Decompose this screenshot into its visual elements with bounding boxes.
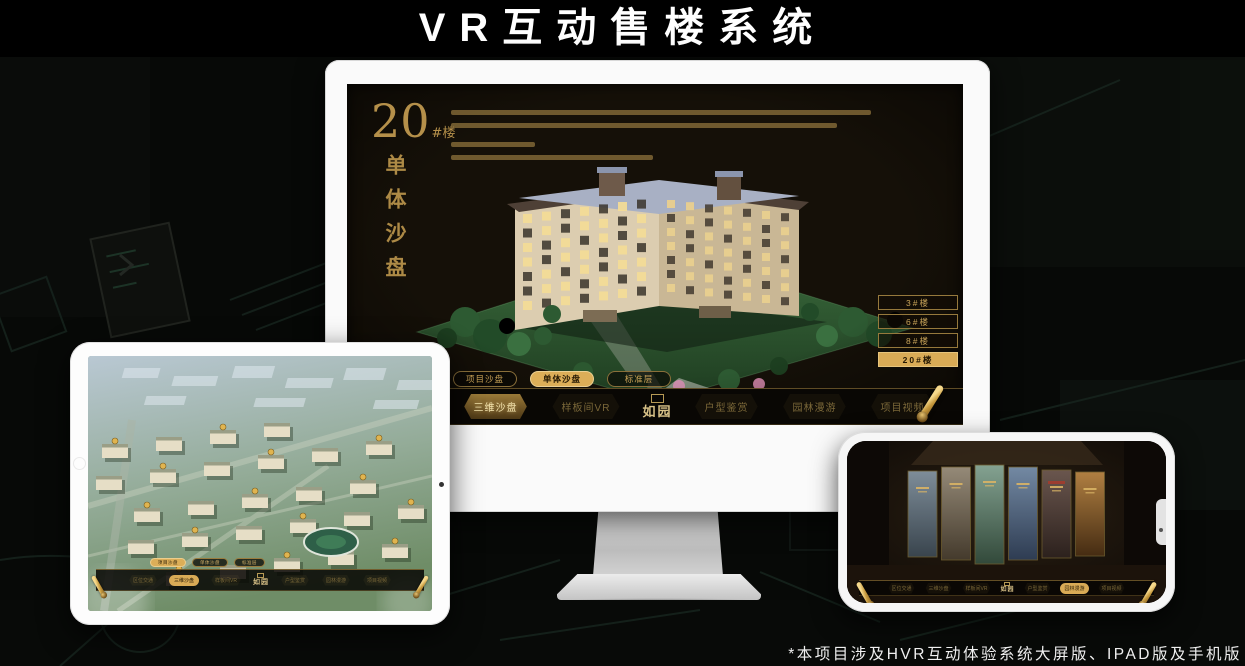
brand-logo[interactable]: 如园 bbox=[253, 573, 269, 587]
subtab-single-sandbox[interactable]: 单体沙盘 bbox=[530, 371, 594, 387]
tablet-subtab-single-sandbox[interactable]: 单体沙盘 bbox=[192, 558, 228, 567]
floor-button-8[interactable]: 8#楼 bbox=[878, 333, 958, 348]
stage: VR互动售楼系统 bbox=[0, 0, 1245, 666]
menu-item-model-room-vr[interactable]: 样板间VR bbox=[550, 394, 623, 419]
subtab-standard-floor[interactable]: 标准层 bbox=[607, 371, 671, 387]
imac-stand-base bbox=[557, 574, 761, 600]
phone-menu-bar: 区位交通 三维沙盘 样板间VR 如园 户型鉴赏 园林漫游 项目视频 bbox=[859, 580, 1154, 596]
tablet-subtab-project-sandbox[interactable]: 项目沙盘 bbox=[150, 558, 186, 567]
tablet-menu-item-3d-sandbox[interactable]: 三维沙盘 bbox=[169, 575, 199, 586]
imac-stand-neck bbox=[593, 512, 723, 576]
tablet-menu-item-model-room-vr[interactable]: 样板间VR bbox=[210, 575, 242, 586]
headline: 20#楼 单体沙盘 bbox=[371, 98, 455, 290]
tablet-menu-item-location[interactable]: 区位交通 bbox=[128, 575, 158, 586]
building-number: 20#楼 bbox=[371, 98, 455, 144]
menu-item-garden-tour[interactable]: 园林漫游 bbox=[780, 394, 848, 419]
floor-button-6[interactable]: 6#楼 bbox=[878, 314, 958, 329]
tablet-menu-item-project-video[interactable]: 项目视频 bbox=[362, 575, 392, 586]
seal-icon bbox=[257, 573, 264, 578]
phone-menu-item-location[interactable]: 区位交通 bbox=[887, 583, 915, 594]
tablet: 项目沙盘 单体沙盘 标准层 区位交通 三维沙盘 样板间VR 如园 户型鉴赏 园林… bbox=[70, 342, 450, 625]
phone: 区位交通 三维沙盘 样板间VR 如园 户型鉴赏 园林漫游 项目视频 bbox=[838, 432, 1175, 612]
menu-item-3d-sandbox[interactable]: 三维沙盘 bbox=[462, 394, 530, 419]
phone-menu-item-unit-plans[interactable]: 户型鉴赏 bbox=[1023, 583, 1051, 594]
tablet-subtab-standard-floor[interactable]: 标准层 bbox=[234, 558, 265, 567]
tablet-menu-item-garden-tour[interactable]: 园林漫游 bbox=[321, 575, 351, 586]
floor-buttons: 3#楼 6#楼 8#楼 20#楼 bbox=[878, 295, 958, 371]
tablet-menu-bar: 区位交通 三维沙盘 样板间VR 如园 户型鉴赏 园林漫游 项目视频 bbox=[96, 569, 424, 591]
seal-icon bbox=[1004, 582, 1010, 586]
page-title: VR互动售楼系统 bbox=[0, 0, 1245, 57]
interior-gallery-render bbox=[847, 441, 1166, 603]
intro-paragraph-placeholder bbox=[451, 110, 871, 168]
phone-menu-item-model-room-vr[interactable]: 样板间VR bbox=[962, 583, 992, 594]
floor-button-20[interactable]: 20#楼 bbox=[878, 352, 958, 367]
brand-logo[interactable]: 如园 bbox=[642, 394, 672, 419]
footnote: *本项目涉及HVR互动体验系统大屏版、IPAD版及手机版 bbox=[788, 642, 1242, 664]
tablet-camera-icon bbox=[439, 482, 444, 487]
floor-button-3[interactable]: 3#楼 bbox=[878, 295, 958, 310]
phone-menu-item-3d-sandbox[interactable]: 三维沙盘 bbox=[924, 583, 952, 594]
title-band: VR互动售楼系统 bbox=[0, 0, 1245, 57]
tablet-screen: 项目沙盘 单体沙盘 标准层 区位交通 三维沙盘 样板间VR 如园 户型鉴赏 园林… bbox=[88, 356, 432, 611]
seal-icon bbox=[651, 394, 664, 403]
phone-notch bbox=[1156, 499, 1166, 545]
phone-screen: 区位交通 三维沙盘 样板间VR 如园 户型鉴赏 园林漫游 项目视频 bbox=[847, 441, 1166, 603]
tablet-subtabs: 项目沙盘 单体沙盘 标准层 bbox=[150, 558, 265, 567]
desktop-subtabs: 项目沙盘 单体沙盘 标准层 bbox=[453, 371, 671, 387]
subtab-project-sandbox[interactable]: 项目沙盘 bbox=[453, 371, 517, 387]
phone-menu-item-garden-tour[interactable]: 园林漫游 bbox=[1060, 583, 1088, 594]
menu-item-unit-plans[interactable]: 户型鉴赏 bbox=[692, 394, 760, 419]
tablet-menu-item-unit-plans[interactable]: 户型鉴赏 bbox=[280, 575, 310, 586]
section-title-vertical: 单体沙盘 bbox=[379, 154, 409, 290]
brand-logo[interactable]: 如园 bbox=[1000, 582, 1014, 594]
tablet-watermark-icon bbox=[73, 457, 86, 470]
phone-menu-item-project-video[interactable]: 项目视频 bbox=[1098, 583, 1126, 594]
